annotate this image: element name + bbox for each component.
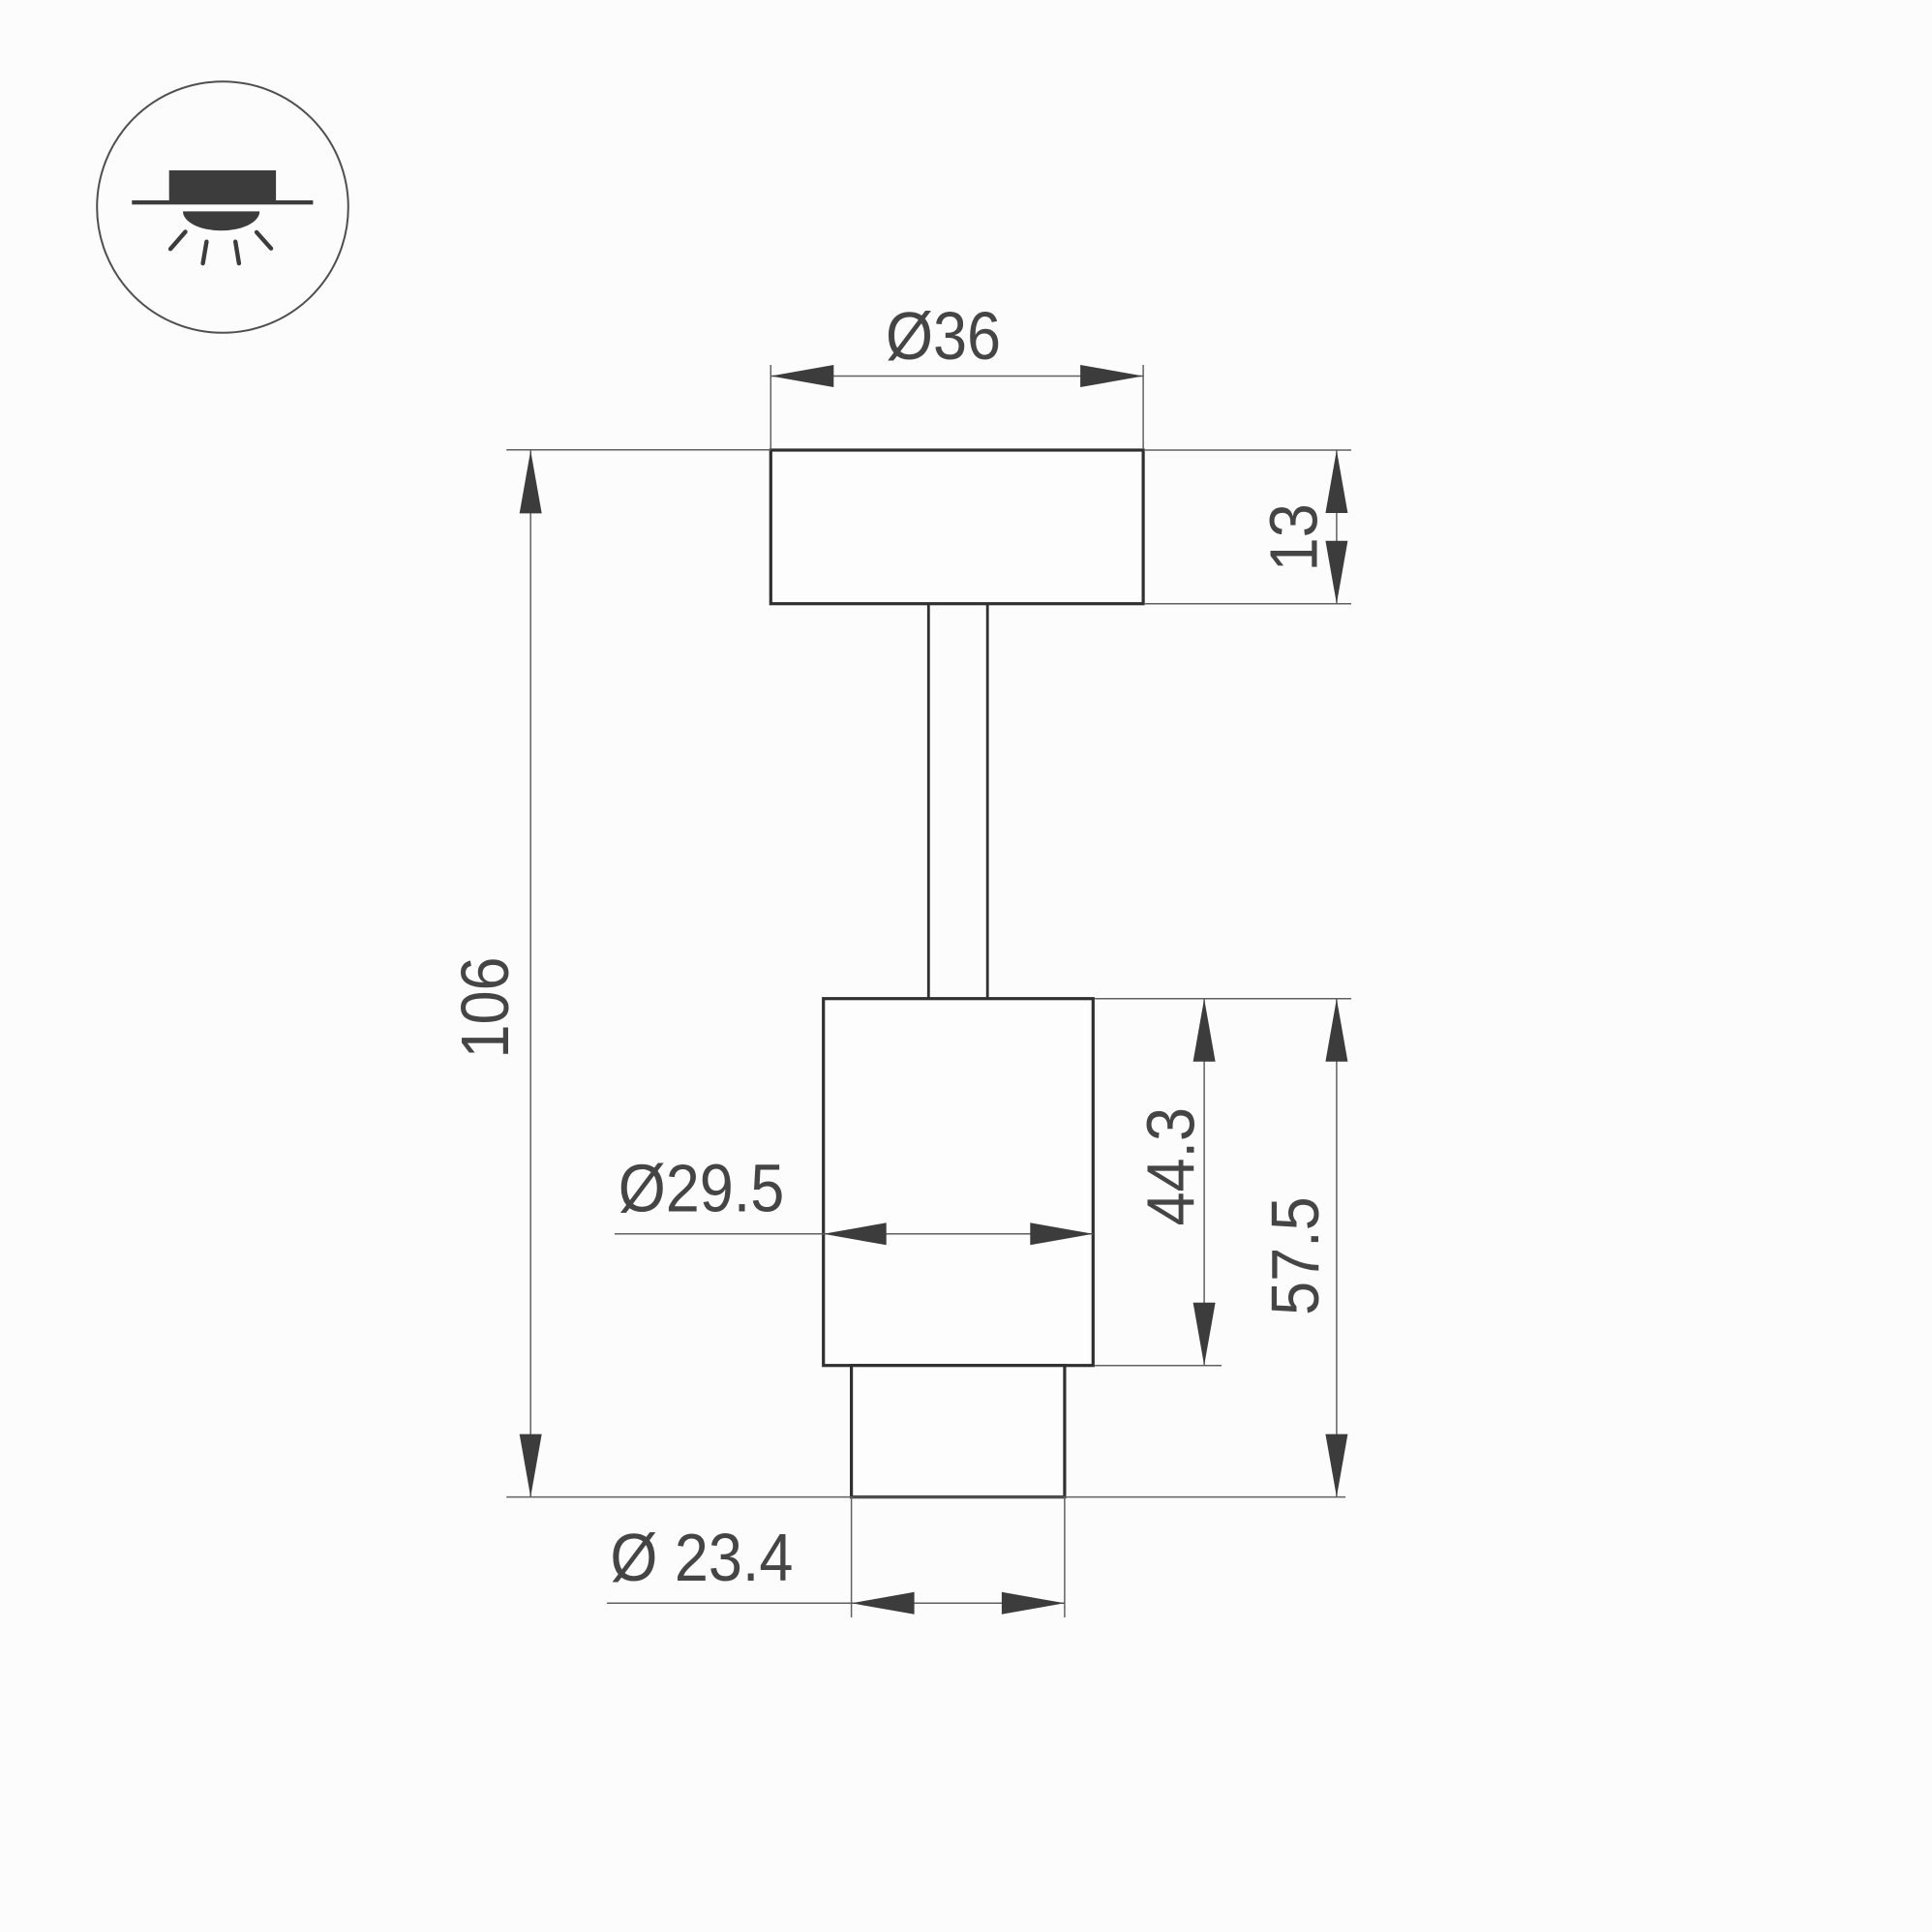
svg-text:Ø36: Ø36 bbox=[886, 299, 1001, 375]
svg-text:106: 106 bbox=[448, 956, 524, 1058]
svg-text:13: 13 bbox=[1256, 503, 1332, 571]
svg-text:Ø29.5: Ø29.5 bbox=[619, 1151, 785, 1226]
svg-text:57.5: 57.5 bbox=[1258, 1196, 1334, 1315]
svg-text:Ø 23.4: Ø 23.4 bbox=[610, 1521, 793, 1596]
svg-text:44.3: 44.3 bbox=[1133, 1107, 1209, 1226]
